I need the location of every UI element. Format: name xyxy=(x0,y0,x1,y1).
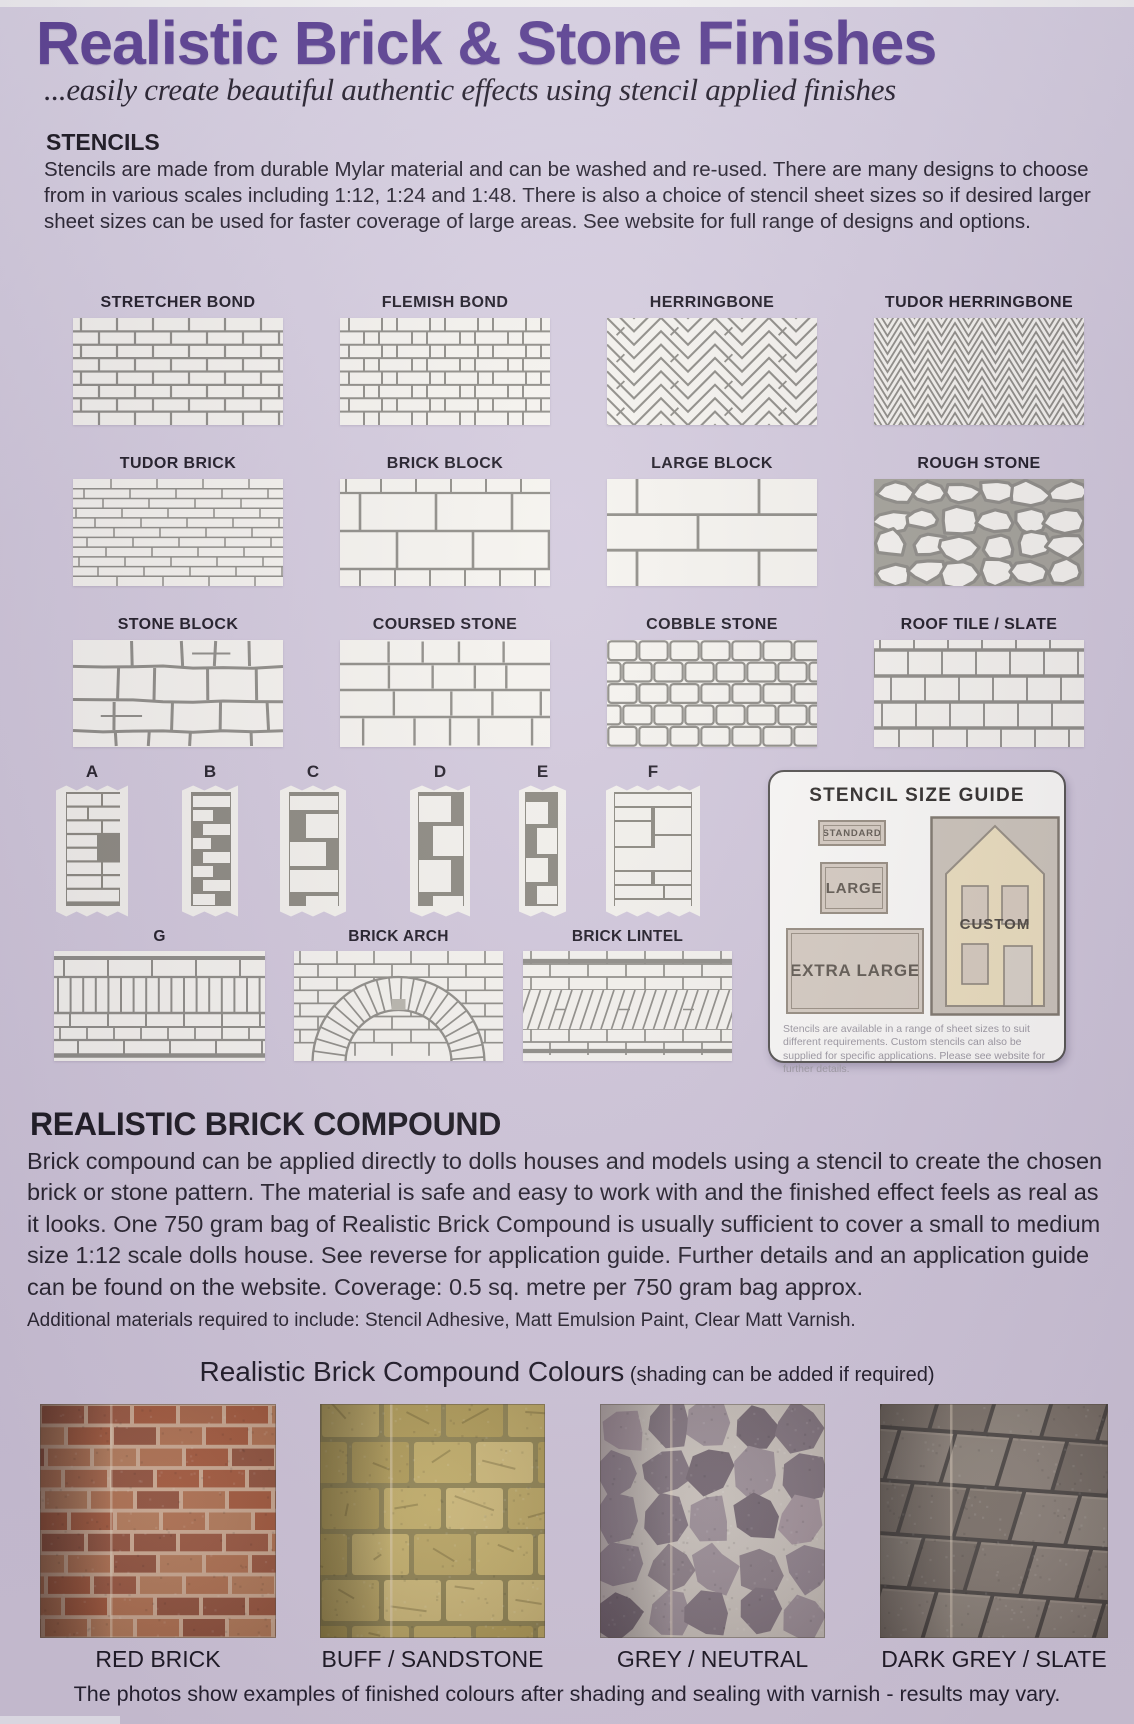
pattern-cell-herringbone: HERRINGBONE xyxy=(607,294,817,425)
feature-swatch-brick-arch xyxy=(294,951,503,1061)
pattern-label: STONE BLOCK xyxy=(118,616,239,634)
corner-sample-letter: C xyxy=(307,762,319,782)
size-guide-title: STENCIL SIZE GUIDE xyxy=(770,785,1064,807)
pattern-label: COURSED STONE xyxy=(373,616,517,634)
stencils-heading: STENCILS xyxy=(46,129,160,156)
size-guide-note: Stencils are available in a range of she… xyxy=(783,1023,1057,1077)
compound-body-text: Brick compound can be applied directly t… xyxy=(27,1146,1113,1303)
photo-label-grey-neutral: GREY / NEUTRAL xyxy=(600,1646,825,1673)
compound-additional-text: Additional materials required to include… xyxy=(27,1310,1113,1332)
pattern-swatch-brick-block xyxy=(340,479,550,586)
pattern-swatch-herringbone xyxy=(607,318,817,425)
colours-title-main: Realistic Brick Compound Colours xyxy=(199,1356,624,1387)
feature-sample-brick-arch: BRICK ARCH xyxy=(294,928,503,1061)
corner-sample-letter: A xyxy=(86,762,98,782)
corner-sample-letter: D xyxy=(434,762,446,782)
feature-label: BRICK ARCH xyxy=(294,928,503,946)
pattern-label: BRICK BLOCK xyxy=(387,455,503,473)
pattern-cell-stone-block: STONE BLOCK xyxy=(73,616,283,747)
corner-sample-e: E xyxy=(519,762,566,918)
footnote-text: The photos show examples of finished col… xyxy=(0,1682,1134,1707)
corner-sample-strip xyxy=(182,784,238,918)
pattern-cell-tudor-brick: TUDOR BRICK xyxy=(73,455,283,586)
feature-swatch-band xyxy=(54,951,265,1061)
pattern-label: LARGE BLOCK xyxy=(651,455,773,473)
pattern-swatch-flemish-bond xyxy=(340,318,550,425)
corner-sample-c: C xyxy=(280,762,346,918)
colours-title: Realistic Brick Compound Colours (shadin… xyxy=(0,1356,1134,1388)
size-large-swatch: LARGE xyxy=(820,862,888,914)
pattern-swatch-rough-stone xyxy=(874,479,1084,586)
pattern-swatch-stretcher-bond xyxy=(73,318,283,425)
corner-sample-a: A xyxy=(56,762,128,918)
pattern-cell-roof-tile: ROOF TILE / SLATE xyxy=(874,616,1084,747)
pattern-swatch-cobble-stone xyxy=(607,640,817,747)
corner-sample-strip xyxy=(280,784,346,918)
pattern-swatch-tudor-brick xyxy=(73,479,283,586)
corner-sample-strip xyxy=(519,784,566,918)
feature-swatch-brick-lintel xyxy=(523,951,732,1061)
pattern-swatch-roof-tile xyxy=(874,640,1084,747)
stencils-body-text: Stencils are made from durable Mylar mat… xyxy=(44,157,1098,236)
leaflet-page: Realistic Brick & Stone Finishes ...easi… xyxy=(0,0,1134,1724)
pattern-cell-large-block: LARGE BLOCK xyxy=(607,455,817,586)
feature-sample-g: G xyxy=(54,928,265,1061)
size-extra-large-swatch: EXTRA LARGE xyxy=(786,928,924,1014)
pattern-label: TUDOR BRICK xyxy=(120,455,236,473)
size-standard-label: STANDARD xyxy=(823,828,882,839)
pattern-label: ROOF TILE / SLATE xyxy=(901,616,1058,634)
corner-sample-d: D xyxy=(410,762,470,918)
pattern-swatch-coursed-stone xyxy=(340,640,550,747)
corner-sample-f: F xyxy=(606,762,700,918)
photo-grey-neutral xyxy=(600,1404,825,1638)
page-subtitle: ...easily create beautiful authentic eff… xyxy=(44,72,896,108)
pattern-swatch-large-block xyxy=(607,479,817,586)
corner-sample-strip xyxy=(410,784,470,918)
buff-sandstone-texture xyxy=(320,1404,545,1638)
pattern-cell-stretcher-bond: STRETCHER BOND xyxy=(73,294,283,425)
feature-label: G xyxy=(54,928,265,946)
feature-sample-brick-lintel: BRICK LINTEL xyxy=(523,928,732,1061)
dark-grey-slate-texture xyxy=(880,1404,1108,1638)
corner-sample-letter: B xyxy=(204,762,216,782)
photo-red-brick xyxy=(40,1404,276,1638)
colours-title-note: (shading can be added if required) xyxy=(624,1364,934,1386)
corner-sample-strip xyxy=(606,784,700,918)
pattern-cell-rough-stone: ROUGH STONE xyxy=(874,455,1084,586)
page-title: Realistic Brick & Stone Finishes xyxy=(36,8,936,78)
pattern-label: HERRINGBONE xyxy=(650,294,774,312)
stencil-pattern-grid: STRETCHER BOND FLEMISH BOND HERRINGBONE … xyxy=(73,294,1084,747)
photo-label-buff-sandstone: BUFF / SANDSTONE xyxy=(320,1646,545,1673)
pattern-cell-tudor-herringbone: TUDOR HERRINGBONE xyxy=(874,294,1084,425)
photo-dark-grey-slate xyxy=(880,1404,1108,1638)
size-standard-swatch: STANDARD xyxy=(818,820,886,846)
pattern-cell-cobble-stone: COBBLE STONE xyxy=(607,616,817,747)
corner-sample-strip xyxy=(56,784,128,918)
pattern-swatch-stone-block xyxy=(73,640,283,747)
size-extra-large-label: EXTRA LARGE xyxy=(790,961,920,981)
size-large-label: LARGE xyxy=(826,880,883,897)
feature-label: BRICK LINTEL xyxy=(523,928,732,946)
corner-sample-letter: E xyxy=(537,762,548,782)
photo-edge-bottom xyxy=(0,1716,120,1724)
size-custom-label: CUSTOM xyxy=(930,916,1060,933)
corner-sample-b: B xyxy=(182,762,238,918)
photo-label-dark-grey-slate: DARK GREY / SLATE xyxy=(880,1646,1108,1673)
custom-house-diagram: CUSTOM xyxy=(930,816,1060,1016)
pattern-label: TUDOR HERRINGBONE xyxy=(885,294,1073,312)
corner-sample-letter: F xyxy=(648,762,658,782)
pattern-cell-brick-block: BRICK BLOCK xyxy=(340,455,550,586)
pattern-label: FLEMISH BOND xyxy=(382,294,509,312)
photo-buff-sandstone xyxy=(320,1404,545,1638)
pattern-cell-flemish-bond: FLEMISH BOND xyxy=(340,294,550,425)
photo-edge-top xyxy=(0,0,1134,7)
pattern-cell-coursed-stone: COURSED STONE xyxy=(340,616,550,747)
pattern-label: STRETCHER BOND xyxy=(101,294,256,312)
grey-neutral-texture xyxy=(600,1404,825,1638)
stencil-size-guide-panel: STENCIL SIZE GUIDE STANDARD LARGE EXTRA … xyxy=(768,770,1066,1063)
pattern-swatch-tudor-herringbone xyxy=(874,318,1084,425)
pattern-label: COBBLE STONE xyxy=(646,616,778,634)
photo-label-red-brick: RED BRICK xyxy=(40,1646,276,1673)
compound-heading: REALISTIC BRICK COMPOUND xyxy=(30,1106,501,1143)
red-brick-texture xyxy=(40,1404,276,1638)
pattern-label: ROUGH STONE xyxy=(917,455,1040,473)
